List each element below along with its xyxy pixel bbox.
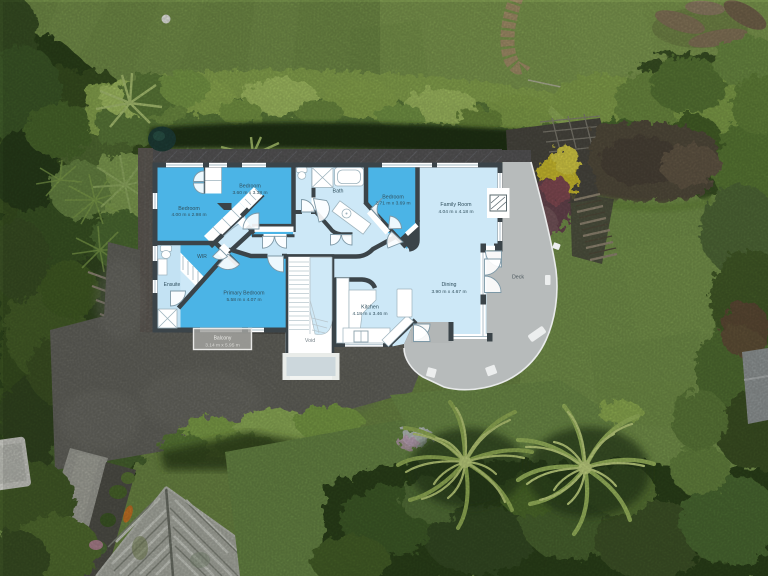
svg-text:Bath: Bath	[333, 189, 344, 195]
svg-text:Deck: Deck	[512, 275, 524, 281]
svg-text:WIR: WIR	[197, 254, 207, 260]
svg-text:3.60 m x 3.38 m: 3.60 m x 3.38 m	[232, 190, 267, 196]
svg-text:Dining: Dining	[441, 282, 456, 288]
svg-text:Void: Void	[305, 338, 315, 344]
svg-text:3.90 m x 4.67 m: 3.90 m x 4.67 m	[431, 289, 466, 295]
svg-text:Family Room: Family Room	[440, 202, 472, 208]
svg-text:5.58 m x 4.07 m: 5.58 m x 4.07 m	[226, 297, 261, 303]
svg-text:2.71 m x 3.69 m: 2.71 m x 3.69 m	[375, 201, 410, 207]
svg-text:4.18 m x 3.46 m: 4.18 m x 3.46 m	[352, 311, 387, 317]
svg-text:Kitchen: Kitchen	[361, 305, 379, 311]
svg-text:Bedroom: Bedroom	[239, 184, 261, 190]
svg-text:Balcony: Balcony	[214, 336, 232, 342]
svg-text:Ensuite: Ensuite	[164, 282, 181, 288]
svg-text:4.04 m x 4.18 m: 4.04 m x 4.18 m	[438, 209, 473, 215]
svg-text:3.14 m x 5.95 m: 3.14 m x 5.95 m	[205, 343, 239, 349]
svg-text:Bedroom: Bedroom	[178, 206, 200, 212]
svg-text:4.00 m x 2.98 m: 4.00 m x 2.98 m	[171, 212, 206, 218]
svg-text:Primary Bedroom: Primary Bedroom	[223, 291, 265, 297]
svg-text:Bedroom: Bedroom	[382, 195, 404, 201]
